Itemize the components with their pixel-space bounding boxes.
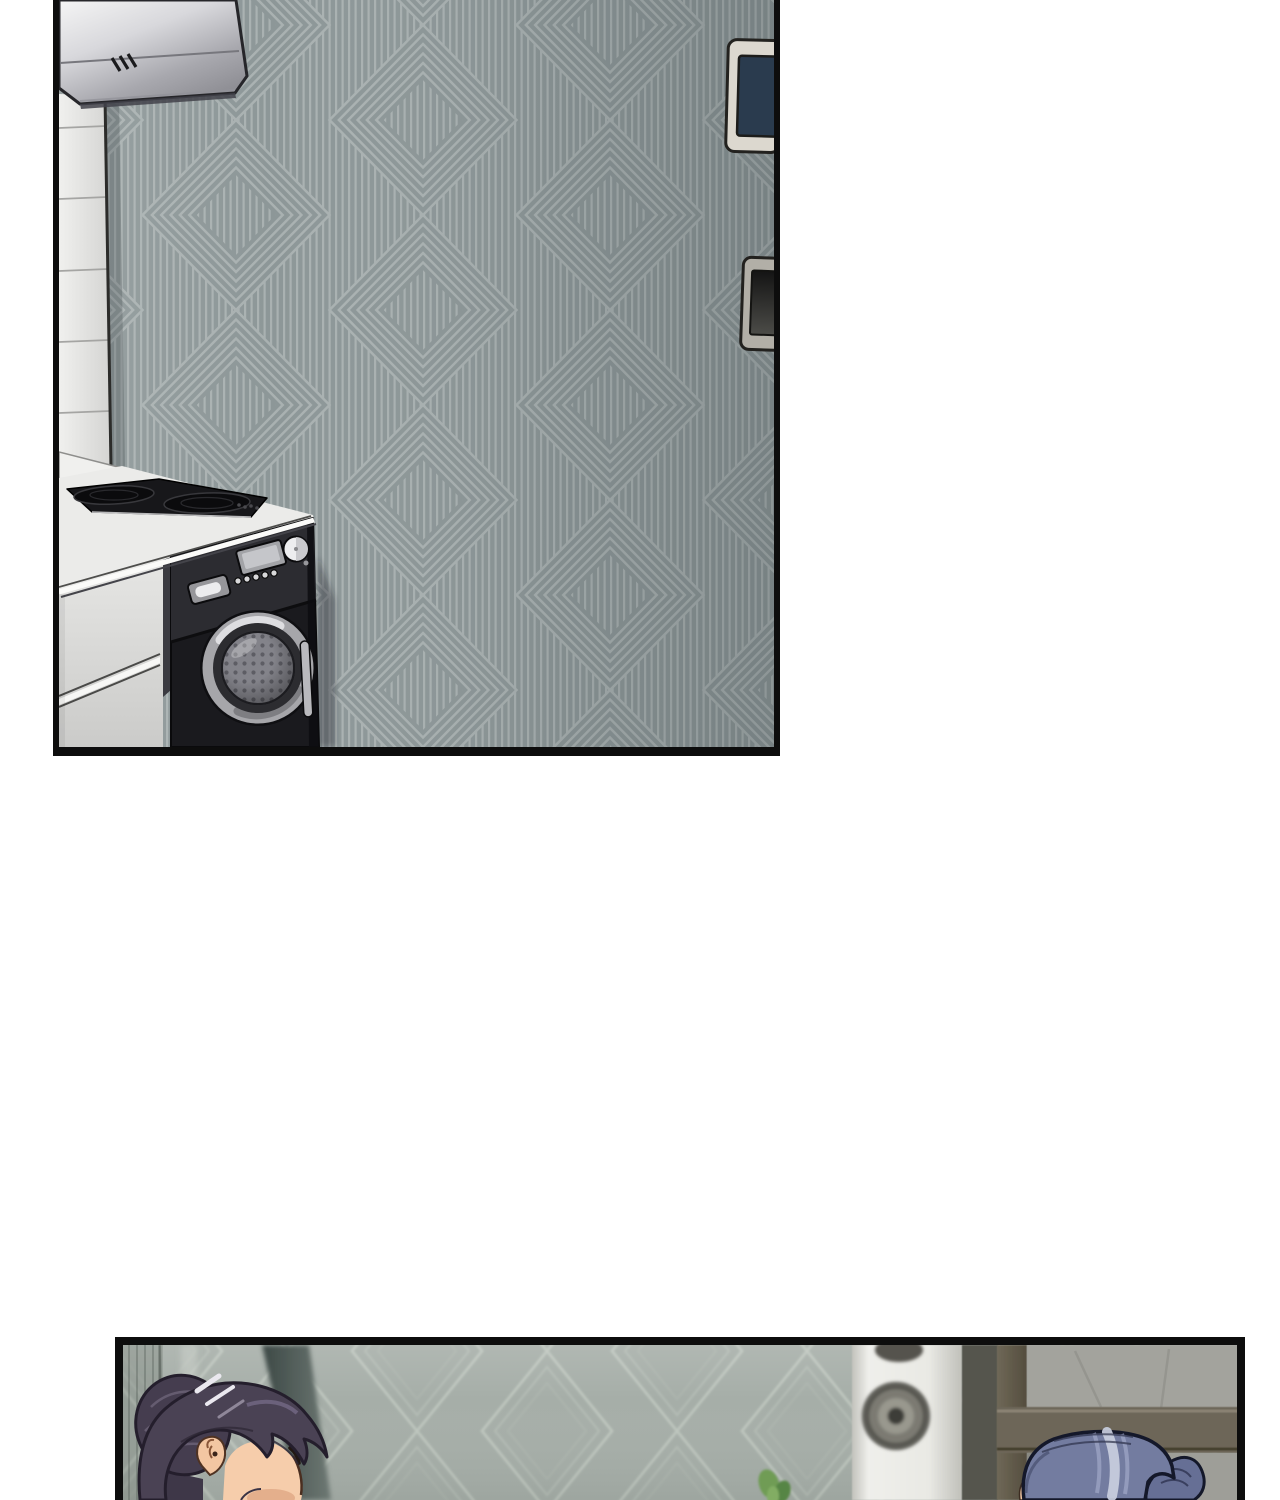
speaker-cone-main <box>862 1382 930 1450</box>
wall-thermostat <box>726 39 774 152</box>
washer-side <box>163 557 171 697</box>
frame-shadow-gap <box>962 1345 998 1500</box>
upper-wall <box>1027 1345 1237 1413</box>
thermostat-screen <box>737 56 774 137</box>
vent-opening <box>750 270 774 336</box>
range-hood <box>59 0 247 109</box>
tile-wall <box>59 94 125 468</box>
wall-vent <box>740 257 774 351</box>
washer-door <box>200 610 316 726</box>
speaker-tower <box>852 1345 962 1500</box>
comic-panel-kitchen <box>53 0 780 756</box>
comic-panel-livingroom <box>115 1337 1245 1500</box>
washing-machine <box>163 518 319 747</box>
washer-knob <box>284 537 309 562</box>
comic-page: { "page": { "background": "#ffffff", "me… <box>0 0 1280 1500</box>
